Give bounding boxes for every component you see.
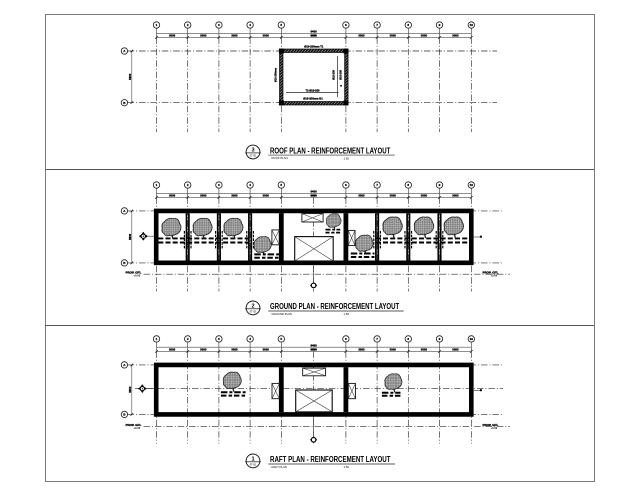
svg-text:3000: 3000 xyxy=(421,34,428,38)
svg-text:3000: 3000 xyxy=(231,34,238,38)
svg-text:9: 9 xyxy=(439,23,441,27)
svg-text:7: 7 xyxy=(376,23,378,27)
svg-text:8: 8 xyxy=(407,23,409,27)
svg-text:Ø10-200mm B1: Ø10-200mm B1 xyxy=(303,96,323,100)
svg-text:1:50: 1:50 xyxy=(344,465,350,469)
svg-text:+0.00: +0.00 xyxy=(133,274,140,278)
svg-text:+0.00: +0.00 xyxy=(490,274,497,278)
svg-text:+0.00: +0.00 xyxy=(133,426,140,430)
svg-text:6: 6 xyxy=(345,183,347,187)
svg-text:3000: 3000 xyxy=(390,34,397,38)
svg-text:3000: 3000 xyxy=(452,194,459,198)
svg-text:5: 5 xyxy=(280,183,282,187)
svg-text:3000: 3000 xyxy=(263,34,270,38)
svg-text:6400: 6400 xyxy=(310,348,317,352)
svg-text:7: 7 xyxy=(376,337,378,341)
svg-text:3: 3 xyxy=(218,337,220,341)
svg-text:9: 9 xyxy=(439,183,441,187)
svg-text:7: 7 xyxy=(376,183,378,187)
svg-text:ST-I01: ST-I01 xyxy=(250,155,257,157)
svg-text:5: 5 xyxy=(280,23,282,27)
svg-text:3000: 3000 xyxy=(263,194,270,198)
svg-text:3: 3 xyxy=(251,148,254,154)
svg-text:8: 8 xyxy=(407,183,409,187)
svg-text:3000: 3000 xyxy=(231,348,238,352)
svg-text:4: 4 xyxy=(249,23,251,27)
svg-text:ROOF PLAN: ROOF PLAN xyxy=(272,156,288,160)
svg-text:5800: 5800 xyxy=(128,233,132,240)
svg-text:1: 1 xyxy=(156,183,158,187)
svg-text:3000: 3000 xyxy=(169,194,176,198)
svg-text:3000: 3000 xyxy=(200,194,207,198)
svg-text:3000: 3000 xyxy=(358,34,365,38)
svg-text:2: 2 xyxy=(187,337,189,341)
svg-text:3000: 3000 xyxy=(358,348,365,352)
svg-text:3000: 3000 xyxy=(263,348,270,352)
svg-text:5800: 5800 xyxy=(128,386,132,393)
svg-text:3000: 3000 xyxy=(421,348,428,352)
svg-text:1:50: 1:50 xyxy=(344,312,350,316)
svg-text:3000: 3000 xyxy=(421,194,428,198)
svg-text:10: 10 xyxy=(470,183,474,187)
svg-text:3000: 3000 xyxy=(358,194,365,198)
svg-text:5: 5 xyxy=(280,337,282,341)
svg-text:Ø10-200mm: Ø10-200mm xyxy=(275,67,278,82)
svg-text:4: 4 xyxy=(249,183,251,187)
svg-text:3000: 3000 xyxy=(200,348,207,352)
svg-text:3000: 3000 xyxy=(169,348,176,352)
svg-text:3000: 3000 xyxy=(452,348,459,352)
svg-text:T1-Ø10-200: T1-Ø10-200 xyxy=(306,89,321,93)
svg-text:6: 6 xyxy=(345,23,347,27)
svg-text:2: 2 xyxy=(251,304,254,310)
svg-text:9: 9 xyxy=(439,337,441,341)
svg-text:1: 1 xyxy=(251,457,254,463)
svg-text:RAFT PLAN: RAFT PLAN xyxy=(272,465,287,469)
svg-text:1: 1 xyxy=(156,23,158,27)
svg-text:Ø10-200: Ø10-200 xyxy=(333,70,336,80)
svg-text:6: 6 xyxy=(345,337,347,341)
svg-text:6400: 6400 xyxy=(310,34,317,38)
svg-text:+0.00: +0.00 xyxy=(490,426,497,430)
svg-text:ST-I01: ST-I01 xyxy=(250,311,257,313)
svg-text:3000: 3000 xyxy=(390,194,397,198)
svg-text:3000: 3000 xyxy=(390,348,397,352)
svg-text:ST-I01: ST-I01 xyxy=(250,464,257,466)
svg-text:3000: 3000 xyxy=(452,34,459,38)
svg-text:Ø10-200mm T1: Ø10-200mm T1 xyxy=(304,44,324,48)
svg-text:3000: 3000 xyxy=(200,34,207,38)
svg-text:5800: 5800 xyxy=(128,73,132,80)
svg-text:6400: 6400 xyxy=(310,194,317,198)
svg-text:ROOF PLAN - REINFORCEMENT LAYO: ROOF PLAN - REINFORCEMENT LAYOUT xyxy=(270,146,390,155)
svg-text:3000: 3000 xyxy=(231,194,238,198)
svg-text:10: 10 xyxy=(470,337,474,341)
svg-text:GROUND PLAN - REINFORCEMENT LA: GROUND PLAN - REINFORCEMENT LAYOUT xyxy=(270,302,399,311)
svg-text:2: 2 xyxy=(187,183,189,187)
svg-text:3000: 3000 xyxy=(169,34,176,38)
svg-text:10: 10 xyxy=(470,23,474,27)
svg-text:Ø10-200: Ø10-200 xyxy=(340,70,343,80)
svg-text:3: 3 xyxy=(218,23,220,27)
svg-text:2: 2 xyxy=(187,23,189,27)
svg-text:RAFT PLAN - REINFORCEMENT LAYO: RAFT PLAN - REINFORCEMENT LAYOUT xyxy=(270,455,391,464)
svg-text:3: 3 xyxy=(218,183,220,187)
svg-text:8: 8 xyxy=(407,337,409,341)
svg-text:GROUND PLAN: GROUND PLAN xyxy=(272,312,293,316)
svg-text:1: 1 xyxy=(156,337,158,341)
svg-text:4: 4 xyxy=(249,337,251,341)
svg-text:1:50: 1:50 xyxy=(344,156,350,160)
